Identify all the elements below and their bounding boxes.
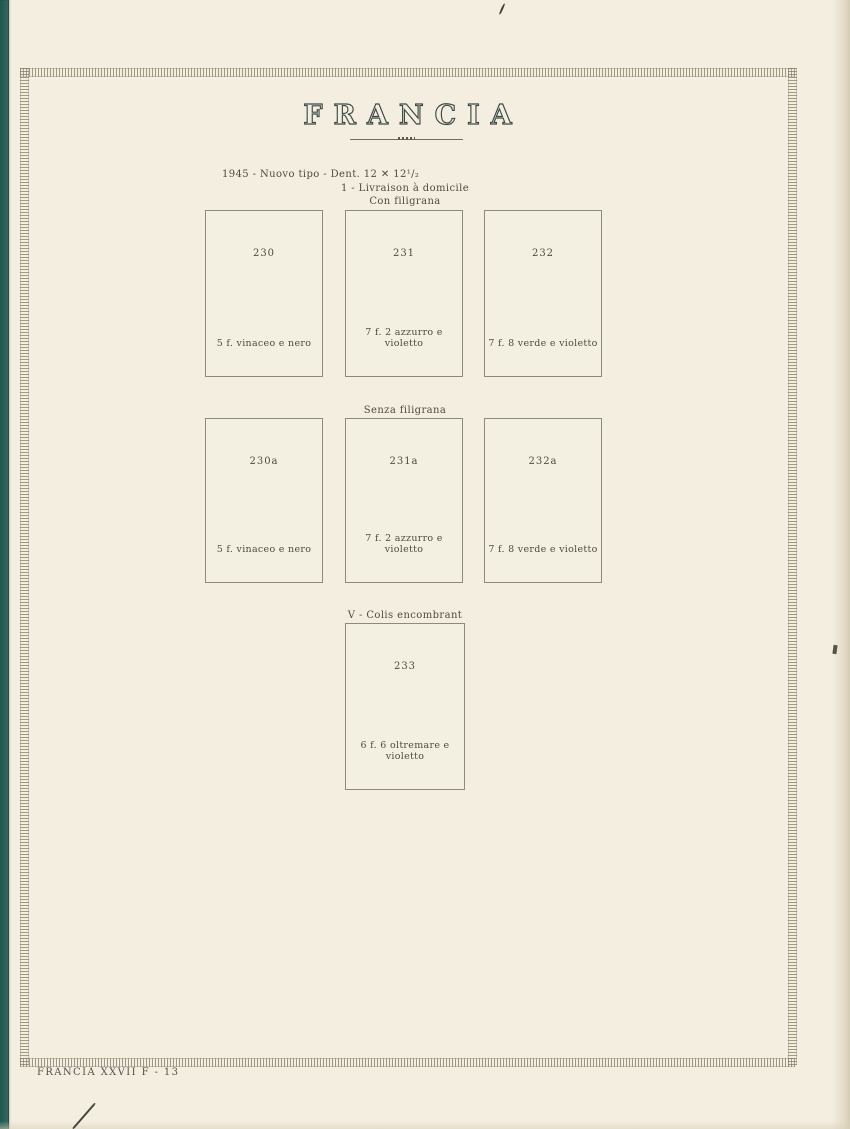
pen-mark-top — [499, 3, 506, 15]
section-3-heading: V - Colis encombrant — [20, 610, 790, 621]
page-title: FRANCIA — [20, 100, 795, 131]
page-bottom-edge-shadow — [0, 1121, 850, 1129]
stamp-description: 7 f. 8 verde e violetto — [485, 544, 601, 555]
stamp-description: 6 f. 6 oltremare e violetto — [346, 740, 464, 762]
stamp-catalog-number: 231 — [346, 248, 462, 259]
decorative-border-left — [20, 68, 29, 1065]
section-1-subheading: Con filigrana — [20, 196, 790, 207]
page-right-edge-shadow — [832, 0, 850, 1129]
stamp-box: 231 7 f. 2 azzurro e violetto — [345, 210, 463, 377]
album-page: FRANCIA 1945 - Nuovo tipo - Dent. 12 ✕ 1… — [0, 0, 850, 1129]
page-fold-shadow — [9, 0, 11, 1129]
stamp-description: 7 f. 8 verde e violetto — [485, 338, 601, 349]
stamp-catalog-number: 233 — [346, 661, 464, 672]
stamp-catalog-number: 232a — [485, 456, 601, 467]
stamp-description: 7 f. 2 azzurro e violetto — [346, 533, 462, 555]
stamp-description: 7 f. 2 azzurro e violetto — [346, 327, 462, 349]
stamp-box: 232a 7 f. 8 verde e violetto — [484, 418, 602, 583]
stamp-description: 5 f. vinaceo e nero — [206, 338, 322, 349]
decorative-border-top — [20, 68, 795, 77]
stamp-box: 232 7 f. 8 verde e violetto — [484, 210, 602, 377]
stamp-catalog-number: 230a — [206, 456, 322, 467]
section-1-heading: 1 - Livraison à domicile — [20, 183, 790, 194]
title-underline-rule — [350, 139, 463, 140]
stamp-catalog-number: 232 — [485, 248, 601, 259]
decorative-border-bottom — [20, 1058, 795, 1067]
title-rule-ornament — [398, 137, 415, 140]
section-2-heading: Senza filigrana — [20, 405, 790, 416]
issue-description: 1945 - Nuovo tipo - Dent. 12 ✕ 12¹/₂ — [222, 169, 419, 180]
stamp-catalog-number: 231a — [346, 456, 462, 467]
stamp-box: 230 5 f. vinaceo e nero — [205, 210, 323, 377]
stamp-catalog-number: 230 — [206, 248, 322, 259]
stamp-description: 5 f. vinaceo e nero — [206, 544, 322, 555]
stamp-box: 233 6 f. 6 oltremare e violetto — [345, 623, 465, 790]
stamp-box: 230a 5 f. vinaceo e nero — [205, 418, 323, 583]
binder-spine — [0, 0, 9, 1129]
stamp-box: 231a 7 f. 2 azzurro e violetto — [345, 418, 463, 583]
decorative-border-right — [788, 68, 797, 1065]
page-footer-reference: FRANCIA XXVII F - 13 — [37, 1067, 179, 1078]
